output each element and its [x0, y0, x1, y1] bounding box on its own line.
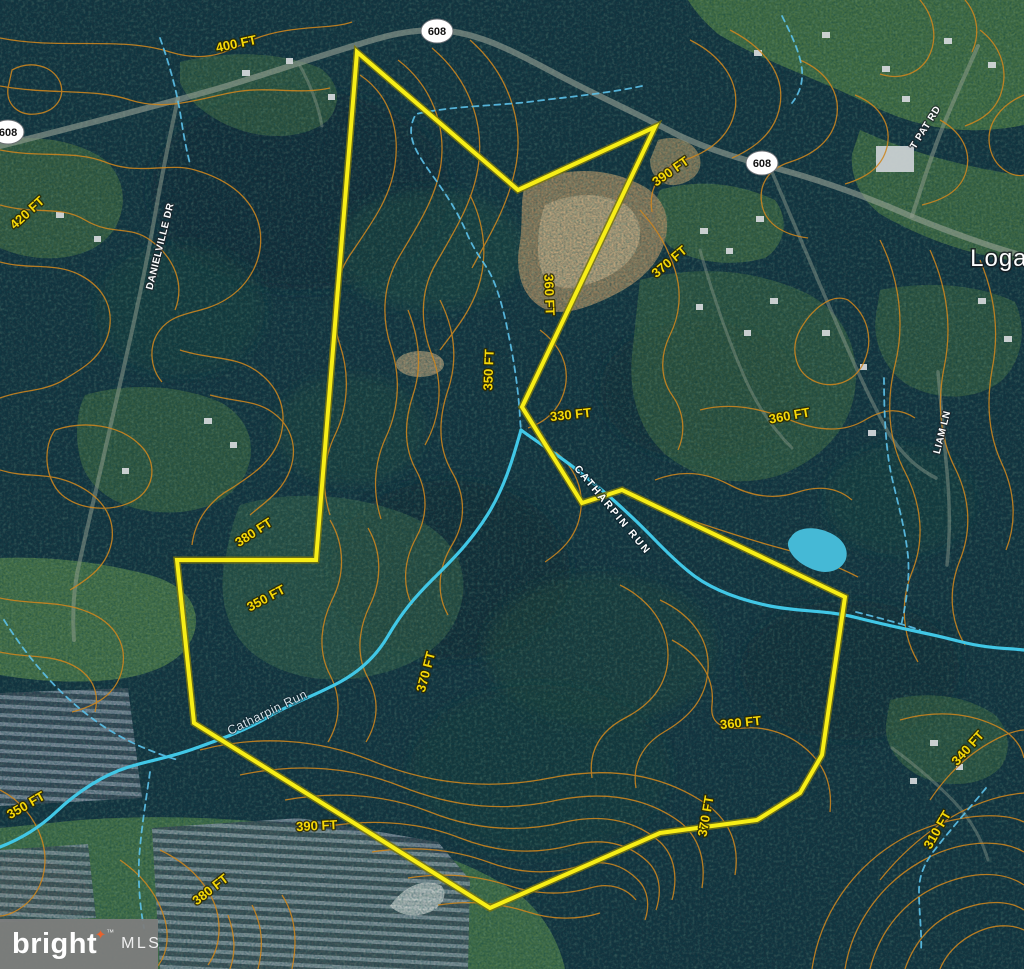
route-shield-608-top: 608: [421, 19, 453, 43]
brightmls-logo-suffix: MLS: [121, 935, 161, 953]
svg-text:608: 608: [0, 127, 17, 139]
brightmls-logo: bright✦™ MLS: [0, 919, 158, 969]
place-label-logan: Logan: [970, 245, 1024, 272]
elevation-label: 360 FT: [541, 274, 557, 316]
brightmls-star-icon: ✦: [95, 927, 106, 943]
elevation-label: 390 FT: [296, 817, 338, 834]
map-viewport[interactable]: 400 FT 420 FT 390 FT 370 FT 360 FT 350 F…: [0, 0, 1024, 969]
route-shield-608-right: 608: [746, 151, 778, 175]
brightmls-logo-brand: bright: [12, 928, 97, 961]
satellite-base: [0, 0, 1024, 969]
svg-text:608: 608: [428, 26, 446, 38]
elevation-label: 350 FT: [480, 349, 496, 391]
brightmls-trademark: ™: [106, 928, 114, 937]
map-canvas[interactable]: 400 FT 420 FT 390 FT 370 FT 360 FT 350 F…: [0, 0, 1024, 969]
svg-text:608: 608: [753, 158, 771, 170]
